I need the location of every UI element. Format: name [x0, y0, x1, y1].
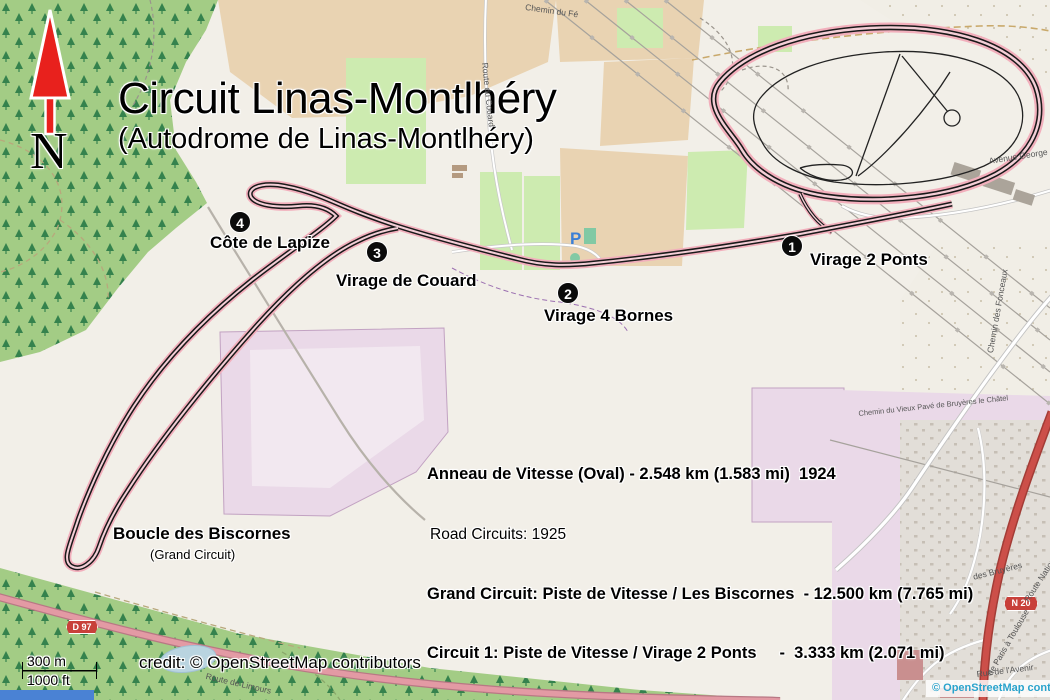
road-shield-d97: D 97	[66, 620, 98, 634]
circuit-info: Anneau de Vitesse (Oval) - 2.548 km (1.5…	[427, 427, 983, 700]
map: N Circuit Linas-Montlhéry (Autodrome de …	[0, 0, 1050, 700]
info-line-oval: Anneau de Vitesse (Oval) - 2.548 km (1.5…	[427, 463, 983, 486]
boucle-label: Boucle des Biscornes	[113, 524, 291, 544]
osm-attribution-link[interactable]: © OpenStreetMap contrib	[926, 680, 1050, 697]
info-line-circuit-1: Circuit 1: Piste de Vitesse / Virage 2 P…	[427, 642, 983, 665]
blue-strip	[0, 690, 94, 700]
marker-3: 3	[366, 241, 388, 263]
credit-text: credit: © OpenStreetMap contributors	[139, 653, 421, 673]
compass-label: N	[30, 122, 68, 181]
info-line-road-circuits: Road Circuits: 1925	[427, 522, 983, 547]
marker-4: 4	[229, 211, 251, 233]
marker-2-label: Virage 4 Bornes	[544, 306, 673, 326]
marker-1-label: Virage 2 Ponts	[810, 250, 928, 270]
boucle-sublabel: (Grand Circuit)	[150, 547, 235, 562]
marker-3-label: Virage de Couard	[336, 271, 476, 291]
parking-icon: P	[570, 229, 581, 249]
marker-1: 1	[781, 235, 803, 257]
compass: N	[22, 6, 92, 181]
info-line-grand-circuit: Grand Circuit: Piste de Vitesse / Les Bi…	[427, 583, 983, 606]
marker-4-label: Côte de Lapize	[210, 233, 330, 253]
marker-2: 2	[557, 282, 579, 304]
scalebar-imperial: 1000 ft	[27, 672, 70, 688]
north-arrow-icon	[22, 6, 92, 136]
